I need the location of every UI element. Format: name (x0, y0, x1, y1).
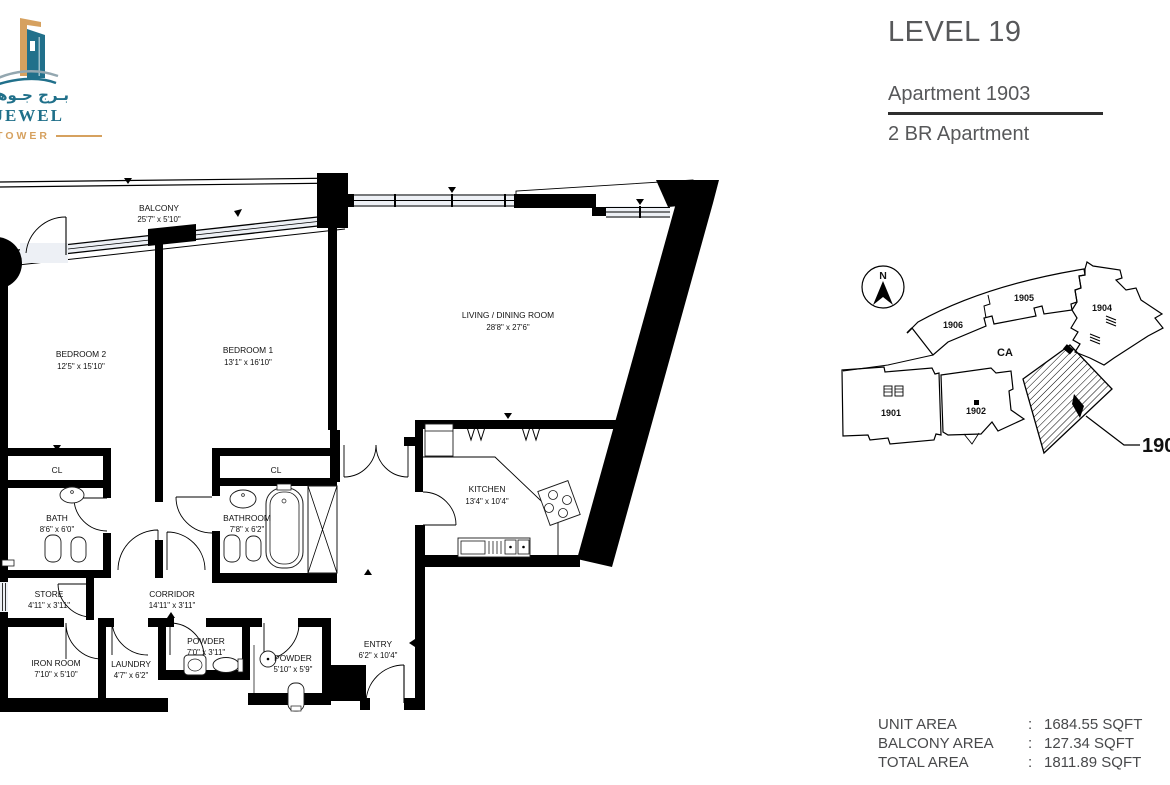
unit-1904-outline (1071, 262, 1163, 365)
stove-burner-3 (545, 504, 554, 513)
area-row-balcony: BALCONY AREA : 127.34 SQFT (878, 734, 1170, 753)
kitchen-door (423, 492, 456, 525)
bathroom-left-wall-b (212, 531, 220, 578)
bathroom-left-wall-a (212, 448, 220, 496)
common-area-label: CA (997, 347, 1013, 359)
powder1-left-wall (158, 618, 166, 676)
unit-1902-outline (941, 368, 1024, 435)
corridor-bottom-wall-a (0, 618, 64, 627)
band-left-tick (907, 328, 912, 333)
logo-brand-text: H JEWEL (0, 106, 64, 126)
area-value: 1811.89 SQFT (1044, 753, 1170, 772)
laundry-door (112, 623, 148, 655)
area-colon: : (1028, 753, 1044, 772)
area-label: BALCONY AREA (878, 734, 1028, 753)
leader-line-1903 (1086, 416, 1140, 445)
stove-burner-1 (549, 491, 558, 500)
hob-dot-2 (522, 546, 525, 549)
kitchen-sink-basin (461, 541, 485, 554)
bedroom1-door (167, 532, 205, 570)
living-top-step (592, 207, 608, 216)
bathroom-sink (230, 490, 256, 508)
bath-fitting (2, 560, 14, 566)
unit-label-1901: 1901 (881, 408, 901, 418)
apartment-type: 2 BR Apartment (888, 123, 1170, 146)
room-dim-bathroom: 7'8" x 6'2" (230, 525, 265, 534)
room-label-powder2: POWDER (274, 653, 312, 663)
room-label-bedroom2: BEDROOM 2 (56, 349, 107, 359)
room-dim-bedroom1: 13'1" x 16'10" (224, 358, 272, 367)
double-door-right (376, 445, 408, 477)
unit-1901-outline (842, 367, 941, 444)
unit-label-1904: 1904 (1092, 303, 1112, 313)
logo-gold-dash (56, 135, 102, 137)
entry-door-arc (366, 665, 404, 703)
north-arrow: N (862, 266, 904, 308)
room-dim-kitchen: 13'4" x 10'4" (465, 497, 508, 506)
powder1-sink-bowl (188, 659, 202, 671)
bedroom1-living-wall (328, 228, 337, 430)
bathroom-toilet (224, 535, 240, 562)
unit-label-1906: 1906 (943, 320, 963, 330)
cl1-top-wall (212, 448, 337, 456)
top-wall-block (317, 173, 348, 228)
bath-bidet (71, 537, 86, 562)
room-label-bedroom1: BEDROOM 1 (223, 345, 274, 355)
room-label-bath: BATH (46, 513, 68, 523)
corner-wall (656, 180, 719, 207)
room-label-entry: ENTRY (364, 639, 393, 649)
room-dim-powder1: 7'0" x 3'11" (187, 648, 225, 657)
room-label-living: LIVING / DINING ROOM (462, 310, 554, 320)
room-label-laundry: LAUNDRY (111, 659, 151, 669)
area-row-total: TOTAL AREA : 1811.89 SQFT (878, 753, 1170, 772)
logo-tower-row: TOWER (0, 130, 102, 142)
bath-sink (60, 487, 84, 503)
area-row-unit: UNIT AREA : 1684.55 SQFT (878, 715, 1170, 734)
floorplan-page: { "logo": { "arabic": "بـرج جـوهـرة", "b… (0, 0, 1170, 785)
title-underline (888, 112, 1103, 115)
room-label-kitchen: KITCHEN (469, 484, 506, 494)
bath-toilet (45, 535, 61, 562)
area-value: 1684.55 SQFT (1044, 715, 1170, 734)
bathtub-drain (282, 499, 286, 503)
bedroom-divider-wall (155, 239, 163, 452)
room-label-cl2: CL (52, 465, 63, 475)
powder1-toilet-tank (238, 659, 243, 672)
doubledoor-left-jamb (330, 430, 340, 482)
area-value: 127.34 SQFT (1044, 734, 1170, 753)
unit-1902-dot (974, 400, 979, 405)
unit-1904-core-mark-2 (1106, 316, 1116, 326)
room-dim-corridor: 14'11" x 3'11" (149, 601, 196, 610)
area-colon: : (1028, 715, 1044, 734)
passage-divider-b (155, 540, 163, 578)
bathroom-bottom-wall (212, 573, 337, 583)
bathroom-door (176, 497, 212, 533)
keyplan-band-outline (912, 269, 1085, 355)
bottom-wall (0, 698, 168, 712)
room-dim-living: 28'8" x 27'6" (486, 323, 529, 332)
bath-door (74, 498, 107, 531)
entry-bottom-wall-a (360, 698, 370, 710)
room-dim-store: 4'11" x 3'11" (28, 601, 70, 610)
powder1-toilet (213, 658, 239, 673)
logo-tower-text: TOWER (0, 130, 50, 142)
stove-burner-2 (563, 496, 572, 505)
apartment-title: Apartment 1903 (888, 83, 1170, 106)
keyplan-highlight-label: 1903 (1142, 435, 1170, 457)
passage-divider-a (155, 452, 163, 502)
header: LEVEL 19 Apartment 1903 2 BR Apartment (888, 14, 1170, 146)
room-dim-balcony: 25'7" x 5'10" (137, 215, 180, 224)
double-door-left (344, 445, 376, 477)
bedroom2-door (118, 530, 158, 570)
room-label-powder1: POWDER (187, 636, 225, 646)
room-dim-powder2: 5'10" x 5'9" (274, 665, 313, 674)
room-label-balcony: BALCONY (139, 203, 179, 213)
room-label-bathroom: BATHROOM (223, 513, 271, 523)
logo-arabic-text: بـرج جـوهـرة (0, 86, 69, 104)
balcony-railing-line (0, 178, 345, 182)
unit-1904-core-mark-1 (1090, 334, 1100, 344)
area-colon: : (1028, 734, 1044, 753)
floorplan-drawing: BALCONY 25'7" x 5'10" BEDROOM 2 12'5" x … (0, 165, 720, 745)
cl2-bottom-wall (0, 480, 111, 488)
kitchen-left-wall (415, 420, 423, 492)
diagonal-wall (577, 203, 713, 567)
corridor-bottom-wall-d (206, 618, 262, 627)
keyplan-drawing: N 1903 1906 1905 1904 1901 1902 CA (828, 248, 1170, 483)
living-top-wall (514, 194, 596, 208)
room-dim-bath: 8'6" x 6'0" (40, 525, 75, 534)
bath-bottom-wall (0, 570, 111, 578)
room-label-cl1: CL (271, 465, 282, 475)
unit-1903-highlight (1023, 345, 1112, 453)
room-label-ironroom: IRON ROOM (31, 658, 80, 668)
kitchen-entry-right-wall (415, 525, 425, 707)
area-label: TOTAL AREA (878, 753, 1028, 772)
unit-divider-1906-1905 (984, 295, 990, 318)
tower-window-line (39, 37, 41, 76)
powder2-sink-dot (267, 658, 270, 661)
bath-sink-faucet (71, 491, 74, 494)
room-dim-entry: 6'2" x 10'4" (359, 651, 398, 660)
room-dim-ironroom: 7'10" x 5'10" (34, 670, 77, 679)
tower-logo-icon (0, 10, 70, 90)
stove-burner-4 (559, 509, 568, 518)
cl2-top-wall (0, 448, 111, 456)
unit-label-1902: 1902 (966, 406, 986, 416)
cl1-bottom-wall (212, 478, 337, 486)
unit-label-1905: 1905 (1014, 293, 1034, 303)
fridge (425, 424, 453, 456)
unit-1901-core-marks (884, 386, 903, 396)
bathroom-sink-faucet (242, 494, 245, 497)
iron-room-door (66, 623, 102, 659)
room-label-corridor: CORRIDOR (149, 589, 195, 599)
store-window (0, 582, 8, 612)
room-dim-bedroom2: 12'5" x 15'10" (57, 362, 105, 371)
laundry-left-wall (98, 618, 106, 702)
stove-outline (538, 481, 580, 526)
north-label: N (879, 270, 887, 282)
powder2-toilet-base (291, 706, 301, 711)
tower-window (30, 41, 35, 51)
powder2-right-wall (322, 618, 331, 670)
balcony-railing-line2 (0, 183, 345, 187)
doubledoor-right-jamb (404, 437, 416, 446)
entry-bottom-wall-b (404, 698, 425, 710)
hob-dot-1 (509, 546, 512, 549)
bathtub-faucet (277, 484, 291, 490)
area-table: UNIT AREA : 1684.55 SQFT BALCONY AREA : … (878, 715, 1170, 772)
area-label: UNIT AREA (878, 715, 1028, 734)
room-dim-laundry: 4'7" x 6'2" (114, 671, 149, 680)
room-label-store: STORE (35, 589, 64, 599)
level-title: LEVEL 19 (888, 14, 1170, 50)
brand-logo: بـرج جـوهـرة H JEWEL TOWER (0, 0, 132, 162)
bath-right-wall-a (103, 448, 111, 498)
bathroom-bidet (246, 536, 261, 561)
entry-left-block (322, 665, 366, 701)
